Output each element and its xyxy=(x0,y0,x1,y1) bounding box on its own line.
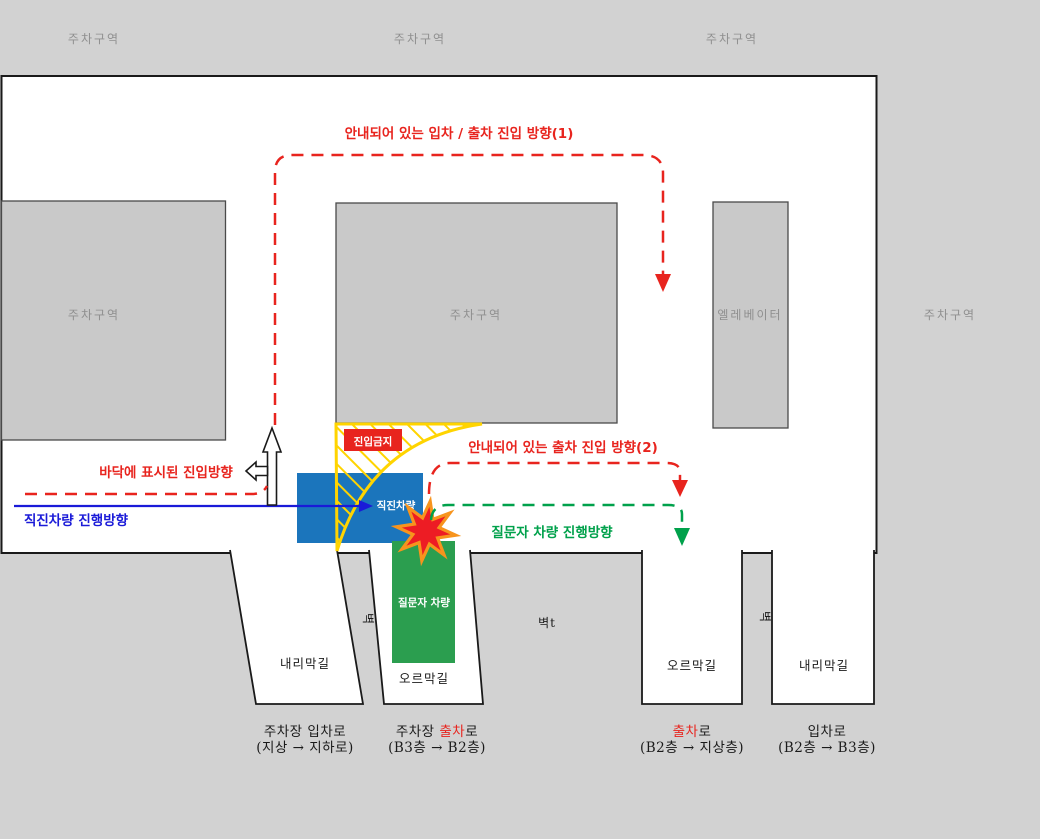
floor-marked-label: 바닥에 표시된 진입방향 xyxy=(99,464,233,481)
route1-label: 안내되어 있는 입차 / 출차 진입 방향(1) xyxy=(345,125,574,142)
parking-diagram: 주차구역 주차구역 주차구역 주차구역 주차구역 엘레베이터 주차구역 진입금지… xyxy=(0,0,1040,839)
caption-exit-b3-red: 출차 xyxy=(439,724,465,740)
caption-exit-b2-post: 로 xyxy=(698,724,711,740)
ramp-bottom-middle-label: 오르막길 xyxy=(399,671,449,686)
caption-exit-b3-post: 로 xyxy=(465,724,478,740)
ramp-right-up-label: 오르막길 xyxy=(667,658,717,673)
caption-exit-b2-line1: 출차로 xyxy=(673,724,712,740)
questioner-route-label: 질문자 차량 진행방향 xyxy=(491,524,613,541)
wall-middle-label: 벽t xyxy=(538,616,556,630)
ramp-right-uphill xyxy=(642,550,742,704)
top-parking-zone-middle-label: 주차구역 xyxy=(394,32,446,46)
ramp-bottom-left-label: 내리막길 xyxy=(280,656,330,671)
diagram-canvas: 주차구역 주차구역 주차구역 주차구역 주차구역 엘레베이터 주차구역 진입금지… xyxy=(0,0,1040,839)
elevator-label: 엘레베이터 xyxy=(717,308,782,322)
caption-exit-b2-red: 출차 xyxy=(673,724,699,740)
caption-entry-b3-line1: 주차장 입차로 xyxy=(264,724,346,740)
wall-right-label: 벽 xyxy=(758,611,772,623)
route2-label: 안내되어 있는 출차 진입 방향(2) xyxy=(468,439,658,456)
questioner-vehicle-label: 질문자 차량 xyxy=(398,596,450,609)
no-entry-label: 진입금지 xyxy=(354,435,393,448)
caption-exit-b2-line2: (B2층 → 지상층) xyxy=(640,740,744,756)
parking-zone-left-label: 주차구역 xyxy=(68,308,120,322)
caption-entry-b2-line1: 입차로 xyxy=(808,724,847,740)
top-parking-zone-right-label: 주차구역 xyxy=(706,32,758,46)
caption-entry-b2-line2: (B2층 → B3층) xyxy=(778,740,876,756)
ramp-right-downhill xyxy=(772,550,874,704)
ramp-right-down-label: 내리막길 xyxy=(799,658,849,673)
caption-exit-b3-line2: (B3층 → B2층) xyxy=(388,740,486,756)
wall-left-label: 벽 xyxy=(361,613,375,625)
caption-entry-b3-line2: (지상 → 지하로) xyxy=(256,740,354,756)
parking-zone-right-label: 주차구역 xyxy=(924,308,976,322)
caption-exit-b3-pre: 주차장 xyxy=(396,724,440,740)
top-parking-zone-left-label: 주차구역 xyxy=(68,32,120,46)
caption-exit-b3-line1: 주차장 출차로 xyxy=(396,724,478,740)
straight-route-label: 직진차량 진행방향 xyxy=(24,512,129,529)
parking-zone-middle-label: 주차구역 xyxy=(450,308,502,322)
